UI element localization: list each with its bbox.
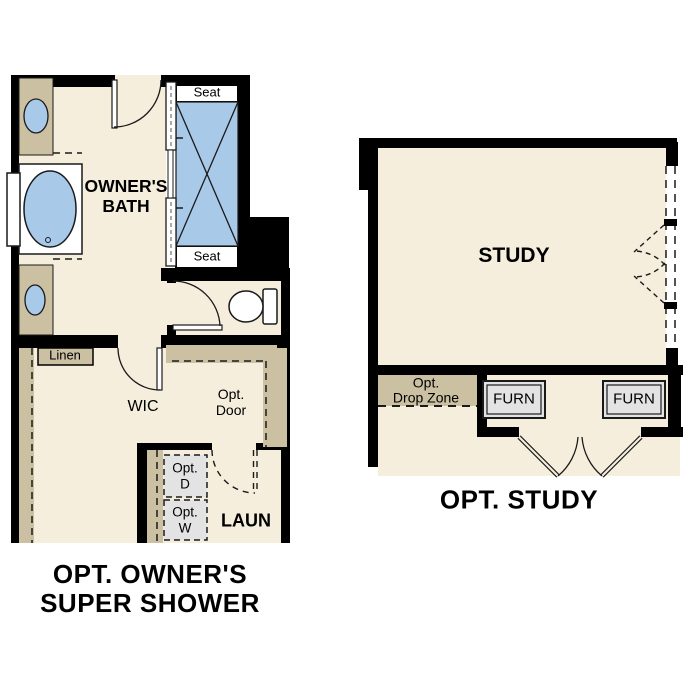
opt-door-label: Opt. Door	[216, 386, 246, 418]
opt-washer-line2: W	[172, 520, 198, 536]
opt-dryer-line2: D	[172, 476, 198, 492]
drop-zone-line2: Drop Zone	[393, 391, 459, 406]
shower-seat-bottom-label: Seat	[194, 250, 221, 265]
toilet	[229, 289, 277, 324]
left-caption-line2: SUPER SHOWER	[40, 589, 260, 618]
wic-label: WIC	[127, 398, 158, 416]
opt-washer-line1: Opt.	[172, 504, 198, 520]
furnace-left-label: FURN	[493, 390, 535, 407]
study-plan	[359, 138, 683, 476]
laundry-label: LAUN	[221, 511, 271, 532]
study-label: STUDY	[478, 244, 549, 268]
right-plan-caption: OPT. STUDY	[440, 485, 598, 514]
linen-label: Linen	[49, 349, 81, 364]
window	[7, 173, 20, 246]
bathtub	[19, 164, 82, 254]
drop-zone-line1: Opt.	[393, 376, 459, 391]
opt-door-line1: Opt.	[216, 386, 246, 402]
owners-bath-label: OWNER'S BATH	[85, 176, 168, 216]
owners-bath-line1: OWNER'S	[85, 176, 168, 196]
owners-bath-plan	[7, 75, 290, 543]
left-plan-caption: OPT. OWNER'S SUPER SHOWER	[40, 560, 260, 618]
study-floor-areas	[378, 148, 680, 476]
drop-zone-label: Opt. Drop Zone	[393, 376, 459, 407]
opt-dryer-line1: Opt.	[172, 460, 198, 476]
furnace-right-label: FURN	[613, 390, 655, 407]
shower	[166, 82, 238, 268]
left-caption-line1: OPT. OWNER'S	[40, 560, 260, 589]
floorplan-canvas: Seat Seat OWNER'S BATH Linen WIC Opt. Do…	[0, 0, 687, 687]
opt-door-line2: Door	[216, 402, 246, 418]
shower-seat-top-label: Seat	[194, 86, 221, 101]
opt-dryer-label: Opt. D	[172, 460, 198, 491]
opt-washer-label: Opt. W	[172, 504, 198, 535]
owners-bath-line2: BATH	[85, 196, 168, 216]
